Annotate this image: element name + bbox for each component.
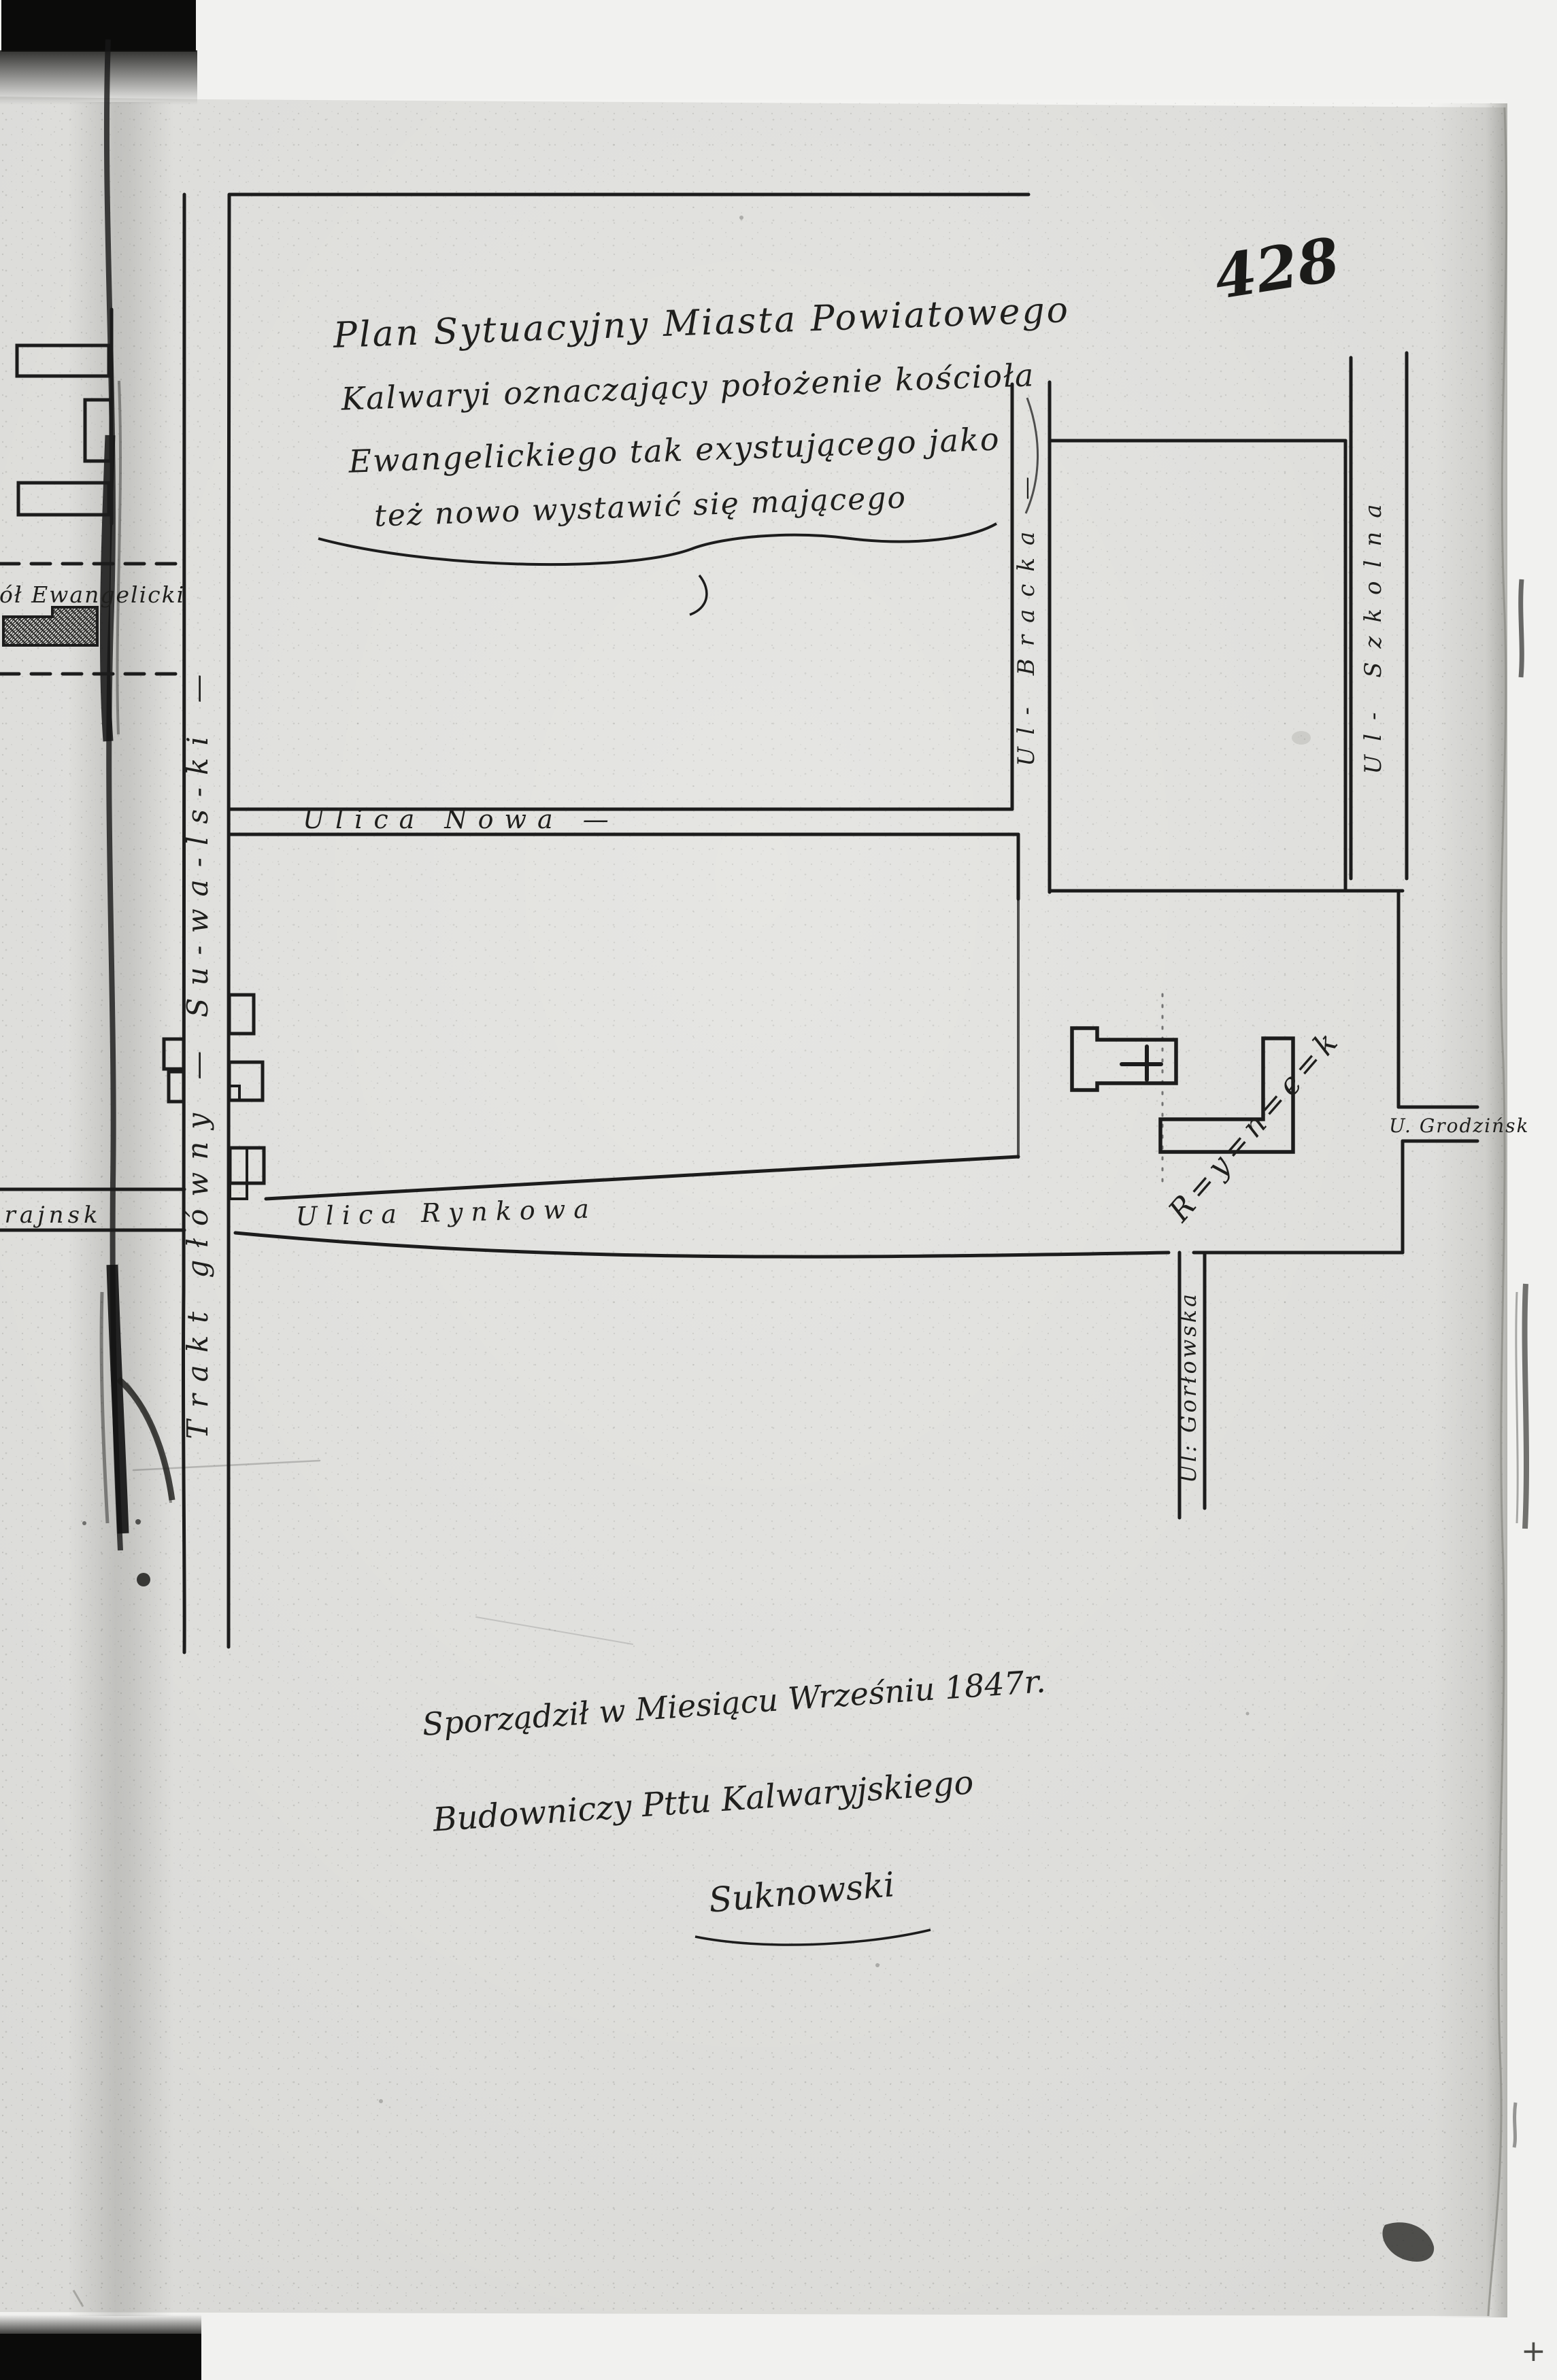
edge-mark-1	[1521, 579, 1522, 677]
street-label-skrajna-fragment: krajnsk	[0, 1202, 102, 1229]
margin-cross-mark: +	[1521, 2334, 1546, 2368]
black-block-top-left	[1, 0, 196, 52]
fleck-2	[875, 1963, 880, 1967]
kosciol-label-fragment: ciół Ewangelicki	[0, 581, 185, 608]
scanned-page: Trakt główny — Su-wa-ls-ki — Ulica Nowa …	[0, 0, 1557, 2380]
fleck-3	[379, 2099, 383, 2103]
street-label-gorlowska: Ul: Gorłowska	[1175, 1291, 1201, 1483]
street-label-grodzinska: U. Grodzińsk	[1389, 1115, 1529, 1137]
scan-svg: Trakt główny — Su-wa-ls-ki — Ulica Nowa …	[0, 0, 1557, 2380]
ink-blot-3	[82, 1521, 86, 1525]
black-block-bottom-fade	[0, 2315, 201, 2335]
trakt-east-line	[229, 194, 229, 1647]
fleck-4	[1246, 1712, 1250, 1716]
page-edge-shadow	[1434, 103, 1507, 2317]
street-label-nowa: Ulica Nowa —	[303, 804, 620, 834]
black-block-bottom-left	[0, 2334, 201, 2380]
ink-blot-1	[137, 1573, 150, 1586]
street-gorlowska: Ul: Gorłowska	[1175, 1253, 1205, 1518]
street-label-trakt: Trakt główny — Su-wa-ls-ki —	[181, 662, 214, 1440]
edge-mark-2	[1525, 1284, 1526, 1529]
edge-mark-4	[1514, 2103, 1516, 2147]
fleck-1	[739, 216, 743, 220]
ink-blot-2	[135, 1519, 141, 1525]
street-label-szkolna: Ul- Szkolna	[1360, 490, 1387, 774]
smudge-1	[1292, 731, 1311, 745]
black-block-top-fade	[0, 50, 197, 105]
